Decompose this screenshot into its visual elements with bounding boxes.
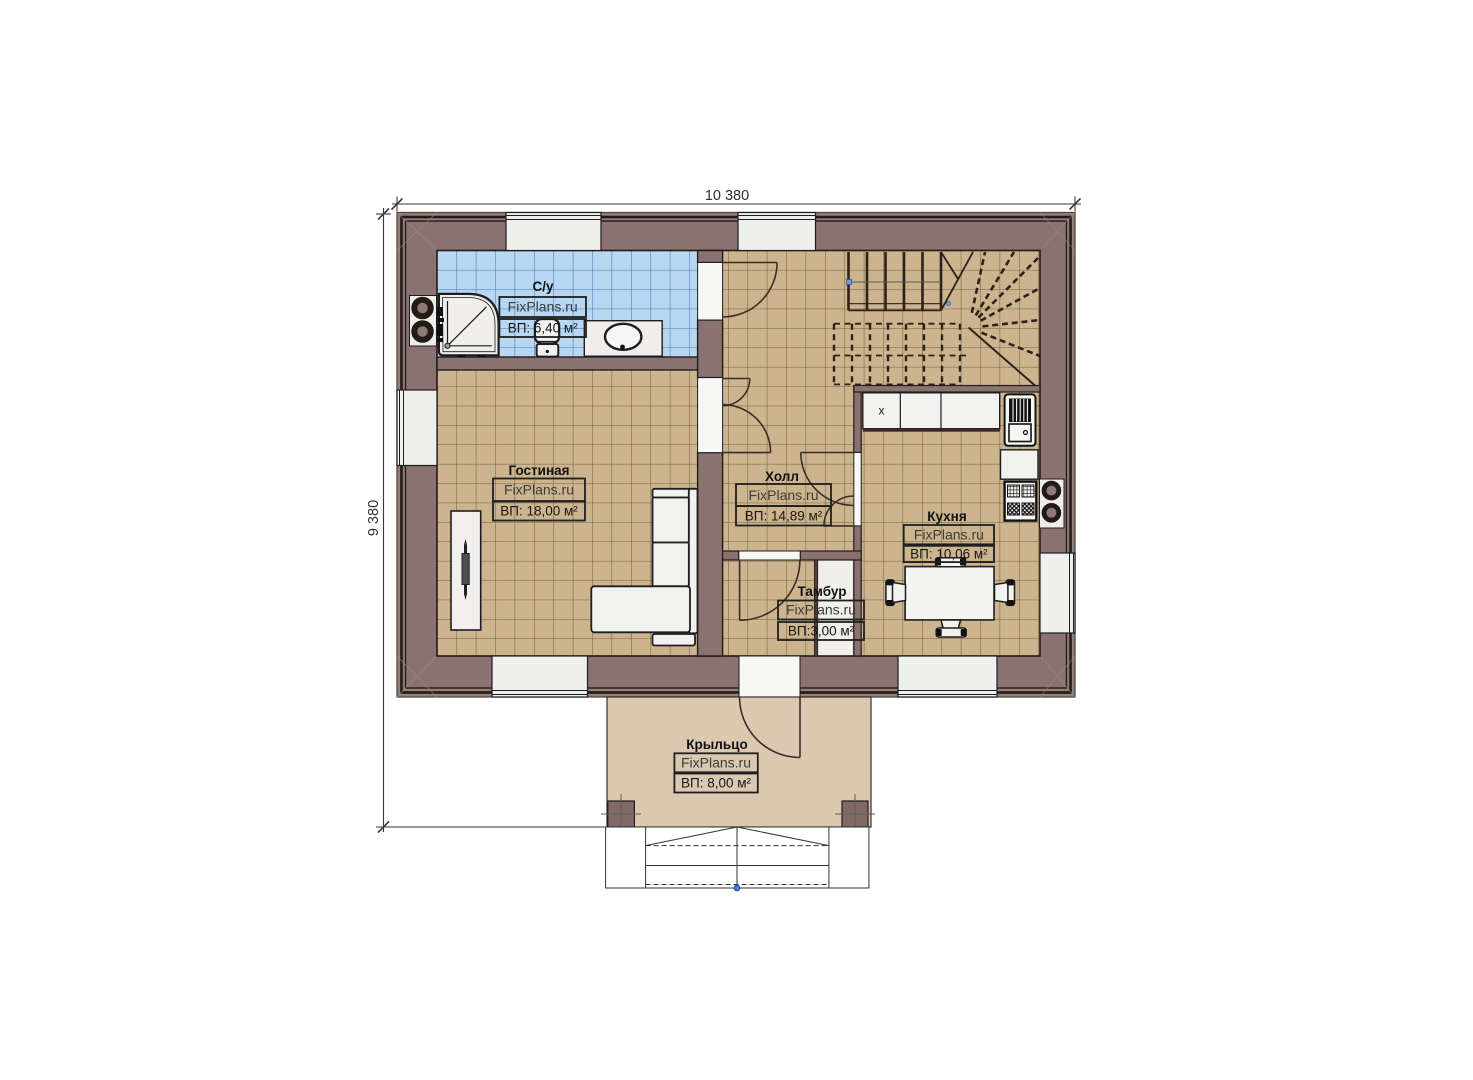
svg-text:ВП: 14,89 м²: ВП: 14,89 м² (745, 509, 823, 524)
svg-text:10 380: 10 380 (705, 188, 749, 204)
svg-text:FixPlans.ru: FixPlans.ru (786, 602, 856, 618)
svg-text:FixPlans.ru: FixPlans.ru (914, 527, 984, 543)
svg-text:ВП: 6,40 м²: ВП: 6,40 м² (508, 321, 579, 336)
svg-text:Тамбур: Тамбур (798, 584, 847, 599)
svg-text:Холл: Холл (765, 469, 799, 484)
svg-text:FixPlans.ru: FixPlans.ru (681, 755, 751, 771)
svg-text:FixPlans.ru: FixPlans.ru (748, 487, 818, 503)
svg-text:FixPlans.ru: FixPlans.ru (508, 299, 578, 315)
svg-text:С/у: С/у (532, 279, 554, 294)
svg-text:ВП: 10,06 м²: ВП: 10,06 м² (910, 547, 988, 562)
svg-text:9 380: 9 380 (366, 500, 382, 536)
svg-text:Гостиная: Гостиная (508, 463, 569, 478)
svg-text:Кухня: Кухня (927, 509, 966, 524)
svg-text:ВП: 8,00 м²: ВП: 8,00 м² (681, 776, 752, 791)
svg-text:ВП:3,00 м²: ВП:3,00 м² (788, 624, 855, 639)
svg-text:Крыльцо: Крыльцо (686, 737, 747, 752)
svg-text:FixPlans.ru: FixPlans.ru (504, 482, 574, 498)
svg-text:x: x (879, 404, 885, 418)
svg-text:ВП: 18,00 м²: ВП: 18,00 м² (500, 504, 578, 519)
